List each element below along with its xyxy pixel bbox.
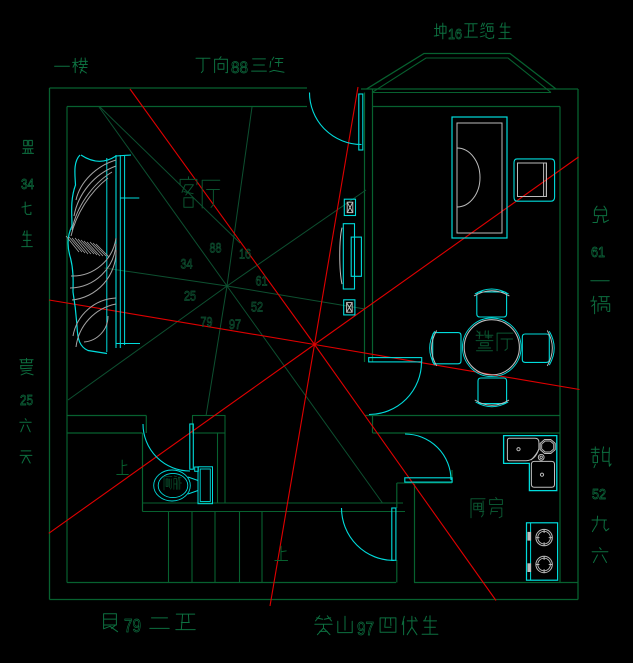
svg-text:25: 25 [20,392,33,409]
svg-text:34: 34 [181,256,193,272]
svg-text:34: 34 [21,176,34,193]
svg-text:52: 52 [251,299,263,315]
svg-text:97: 97 [229,316,241,332]
svg-text:79: 79 [201,314,213,330]
svg-text:88: 88 [210,240,222,256]
svg-text:16: 16 [448,26,462,43]
svg-text:61: 61 [256,273,268,289]
svg-text:52: 52 [592,486,606,503]
svg-text:79: 79 [124,616,141,636]
svg-text:97: 97 [357,619,374,639]
svg-text:88: 88 [231,58,248,77]
svg-text:61: 61 [591,244,605,261]
svg-text:25: 25 [184,288,196,304]
svg-text:16: 16 [239,246,251,262]
